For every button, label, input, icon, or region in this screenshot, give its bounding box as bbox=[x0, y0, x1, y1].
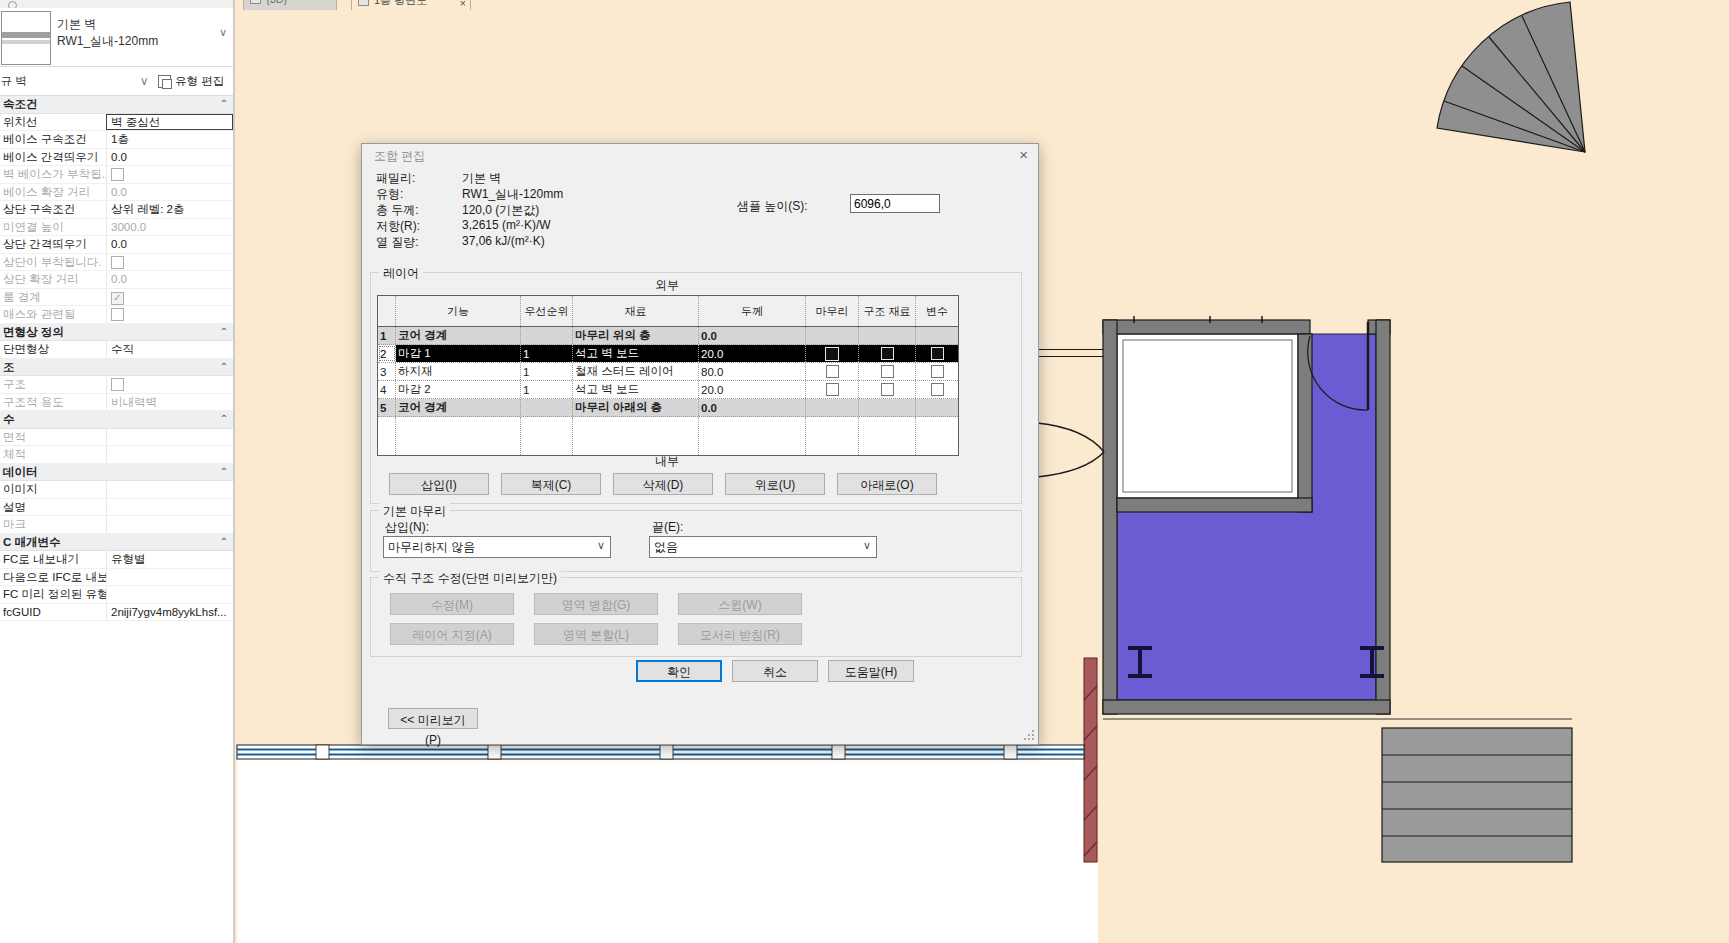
type-selector-dropdown-icon[interactable]: ∨ bbox=[219, 26, 227, 39]
property-value[interactable]: 상위 레벨: 2층 bbox=[106, 201, 233, 218]
property-section-header[interactable]: 조⌃ bbox=[0, 359, 233, 377]
property-section-header[interactable]: 데이터⌃ bbox=[0, 464, 233, 482]
structural-material-cell[interactable] bbox=[859, 327, 916, 344]
property-value[interactable]: 0.0 bbox=[106, 236, 233, 253]
type-selector[interactable]: 기본 벽 RW1_실내-120mm ∨ bbox=[0, 8, 233, 66]
total-thickness-value: 120,0 (기본값) bbox=[462, 202, 539, 219]
property-row[interactable]: 베이스 확장 거리0.0 bbox=[0, 184, 233, 202]
structural-material-cell[interactable] bbox=[859, 363, 916, 380]
3d-view-icon bbox=[250, 0, 261, 4]
priority-cell[interactable]: 1 bbox=[521, 363, 573, 380]
resistance-label: 저항(R): bbox=[376, 218, 420, 235]
property-row[interactable]: 위치선벽 중심선 bbox=[0, 114, 233, 132]
wraps-cell[interactable] bbox=[806, 399, 859, 416]
checkbox-unchecked[interactable] bbox=[111, 308, 124, 321]
property-label: FC로 내보내기 bbox=[0, 551, 106, 568]
property-value[interactable] bbox=[106, 499, 233, 516]
checkbox-unchecked[interactable] bbox=[931, 365, 944, 378]
revit-window: {3D} 1층 평면도 × 기본 벽 RW1_실내-120mm ∨ 신규 벽 ∨ bbox=[0, 0, 1729, 943]
checkbox-unchecked[interactable] bbox=[931, 347, 944, 360]
default-wrapping-group: 기본 마무리 삽입(N): 끝(E): 마무리하지 않음 ∨ 없음 ∨ bbox=[370, 510, 1022, 572]
checkbox-unchecked[interactable] bbox=[111, 168, 124, 181]
property-label: 위치선 bbox=[0, 114, 106, 131]
column-header bbox=[378, 296, 396, 326]
property-value[interactable] bbox=[106, 306, 233, 323]
row-number[interactable]: 2 bbox=[378, 345, 396, 362]
property-value[interactable] bbox=[106, 429, 233, 446]
merge-regions-button: 영역 병합(G) bbox=[534, 593, 658, 615]
move-down-button[interactable]: 아래로(O) bbox=[837, 473, 937, 495]
tab-floor-plan[interactable]: 1층 평면도 × bbox=[351, 0, 471, 10]
property-value[interactable] bbox=[106, 446, 233, 463]
property-label: 체적 bbox=[0, 446, 106, 463]
exterior-region bbox=[1084, 862, 1098, 943]
property-label: 구조적 용도 bbox=[0, 394, 106, 411]
wrap-insert-label: 삽입(N): bbox=[385, 519, 429, 536]
priority-cell[interactable] bbox=[521, 327, 573, 344]
filter-select[interactable]: 신규 벽 bbox=[0, 74, 27, 89]
checkbox-unchecked[interactable] bbox=[931, 383, 944, 396]
row-number[interactable]: 1 bbox=[378, 327, 396, 344]
checkbox-unchecked[interactable] bbox=[881, 383, 894, 396]
layer-row[interactable]: 5코어 경계마무리 아래의 층0.0 bbox=[378, 399, 958, 417]
priority-cell[interactable]: 1 bbox=[521, 345, 573, 362]
floor-plan-icon bbox=[358, 0, 369, 6]
move-up-button[interactable]: 위로(U) bbox=[725, 473, 825, 495]
close-icon[interactable]: × bbox=[1019, 146, 1028, 163]
type-value: RW1_실내-120mm bbox=[462, 186, 563, 203]
insert-button[interactable]: 삽입(I) bbox=[389, 473, 489, 495]
material-cell[interactable] bbox=[573, 417, 699, 455]
property-value[interactable]: 0.0 bbox=[106, 149, 233, 166]
property-label: 매스와 관련됨 bbox=[0, 306, 106, 323]
property-value[interactable]: 3000.0 bbox=[106, 219, 233, 236]
collapse-chevron-icon[interactable]: ⌃ bbox=[215, 96, 233, 113]
property-label: 설명 bbox=[0, 499, 106, 516]
structural-material-cell[interactable] bbox=[859, 399, 916, 416]
edit-type-button[interactable]: 유형 편집 bbox=[158, 70, 232, 92]
material-cell[interactable]: 석고 벽 보드 bbox=[573, 345, 699, 362]
layer-row[interactable]: 2마감 11석고 벽 보드20.0 bbox=[378, 345, 958, 363]
layer-row[interactable]: 1코어 경계마무리 위의 층0.0 bbox=[378, 327, 958, 345]
checkbox-unchecked[interactable] bbox=[881, 347, 894, 360]
layers-table-header: 기능우선순위재료두께마무리구조 재료변수 bbox=[378, 296, 958, 327]
tab-3d-view[interactable]: {3D} bbox=[243, 0, 337, 10]
wraps-cell[interactable] bbox=[806, 345, 859, 362]
function-cell[interactable]: 하지재 bbox=[396, 363, 521, 380]
function-cell[interactable]: 코어 경계 bbox=[396, 399, 521, 416]
function-cell[interactable]: 마감 2 bbox=[396, 381, 521, 398]
wraps-cell[interactable] bbox=[806, 363, 859, 380]
property-value[interactable] bbox=[106, 166, 233, 183]
property-section-header[interactable]: 면형상 정의⌃ bbox=[0, 324, 233, 342]
property-row[interactable]: 베이스 구속조건1층 bbox=[0, 131, 233, 149]
split-region-button: 영역 분할(L) bbox=[534, 623, 658, 645]
property-label: 면형상 정의 bbox=[0, 324, 215, 341]
column-header: 기능 bbox=[396, 296, 521, 326]
property-section-header[interactable]: 수⌃ bbox=[0, 411, 233, 429]
sample-height-label: 샘플 높이(S): bbox=[737, 198, 808, 215]
wrap-end-label: 끝(E): bbox=[652, 519, 683, 536]
property-value[interactable] bbox=[106, 481, 233, 498]
collapse-chevron-icon[interactable]: ⌃ bbox=[215, 464, 233, 481]
close-tab-icon[interactable]: × bbox=[460, 0, 466, 8]
duplicate-button[interactable]: 복제(C) bbox=[501, 473, 601, 495]
wraps-cell[interactable] bbox=[806, 381, 859, 398]
checkbox-unchecked[interactable] bbox=[111, 378, 124, 391]
thickness-cell[interactable]: 20.0 bbox=[699, 345, 806, 362]
modify-button: 수정(M) bbox=[390, 593, 514, 615]
property-label: 이미지 bbox=[0, 481, 106, 498]
wraps-cell[interactable] bbox=[806, 417, 859, 455]
checkbox-unchecked[interactable] bbox=[826, 365, 839, 378]
property-value[interactable] bbox=[106, 254, 233, 271]
view-tab-bar: {3D} 1층 평면도 × bbox=[237, 0, 1729, 10]
row-number[interactable]: 3 bbox=[378, 363, 396, 380]
property-row[interactable]: 체적 bbox=[0, 446, 233, 464]
structural-material-cell[interactable] bbox=[859, 381, 916, 398]
wraps-cell[interactable] bbox=[806, 327, 859, 344]
vertical-structure-label: 수직 구조 수정(단면 미리보기만) bbox=[379, 570, 561, 587]
tab-label: 1층 평면도 bbox=[374, 0, 427, 8]
layers-table[interactable]: 기능우선순위재료두께마무리구조 재료변수1코어 경계마무리 위의 층0.02마감… bbox=[377, 295, 959, 456]
property-value[interactable]: 0.0 bbox=[106, 184, 233, 201]
column-header: 두께 bbox=[699, 296, 806, 326]
row-number[interactable] bbox=[378, 417, 396, 455]
row-number[interactable]: 5 bbox=[378, 399, 396, 416]
column-header: 재료 bbox=[573, 296, 699, 326]
property-value[interactable]: ✓ bbox=[106, 289, 233, 306]
property-value[interactable] bbox=[106, 516, 233, 533]
property-label: 상단이 부착됩니다. bbox=[0, 254, 106, 271]
collapse-chevron-icon[interactable]: ⌃ bbox=[215, 411, 233, 428]
variable-cell[interactable] bbox=[916, 363, 958, 380]
property-row[interactable]: 구조적 용도비내력벽 bbox=[0, 394, 233, 412]
edit-assembly-dialog: 조합 편집 × 패밀리: 기본 벽 유형: RW1_실내-120mm 총 두께:… bbox=[361, 143, 1039, 745]
tab-label: {3D} bbox=[266, 0, 287, 5]
collapse-chevron-icon[interactable]: ⌃ bbox=[215, 324, 233, 341]
family-label: 패밀리: bbox=[376, 170, 415, 187]
column-header: 변수 bbox=[916, 296, 958, 326]
property-label: 단면형상 bbox=[0, 341, 106, 358]
priority-cell[interactable] bbox=[521, 417, 573, 455]
property-row[interactable]: FC 미리 정의된 유형 bbox=[0, 586, 233, 604]
variable-cell[interactable] bbox=[916, 381, 958, 398]
chevron-down-icon[interactable]: ∨ bbox=[140, 74, 148, 88]
ok-button[interactable]: 확인 bbox=[636, 660, 722, 682]
property-row[interactable]: 벽 베이스가 부착됩... bbox=[0, 166, 233, 184]
property-label: 상단 간격띄우기 bbox=[0, 236, 106, 253]
property-value[interactable]: 벽 중심선 bbox=[106, 114, 233, 131]
collapse-chevron-icon[interactable]: ⌃ bbox=[215, 359, 233, 376]
cancel-button[interactable]: 취소 bbox=[732, 660, 818, 682]
thermal-mass-value: 37,06 kJ/(m²·K) bbox=[462, 234, 545, 248]
property-row[interactable]: 상단 구속조건상위 레벨: 2층 bbox=[0, 201, 233, 219]
resistance-value: 3,2615 (m²·K)/W bbox=[462, 218, 551, 232]
property-row[interactable]: FC로 내보내기유형별 bbox=[0, 551, 233, 569]
sample-height-input[interactable] bbox=[850, 194, 940, 213]
delete-button[interactable]: 삭제(D) bbox=[613, 473, 713, 495]
function-cell[interactable]: 코어 경계 bbox=[396, 327, 521, 344]
assign-layers-button: 레이어 지정(A) bbox=[390, 623, 514, 645]
exterior-label: 외부 bbox=[377, 277, 957, 294]
material-cell[interactable]: 석고 벽 보드 bbox=[573, 381, 699, 398]
checkbox-unchecked[interactable] bbox=[826, 383, 839, 396]
property-label: 마크 bbox=[0, 516, 106, 533]
priority-cell[interactable]: 1 bbox=[521, 381, 573, 398]
material-cell[interactable]: 철재 스터드 레이어 bbox=[573, 363, 699, 380]
property-value[interactable] bbox=[106, 569, 233, 586]
sweeps-button: 스윕(W) bbox=[678, 593, 802, 615]
property-label: 면적 bbox=[0, 429, 106, 446]
resize-grip[interactable] bbox=[1024, 730, 1034, 740]
priority-cell[interactable] bbox=[521, 399, 573, 416]
property-row[interactable]: fcGUID2niji7ygv4m8yykLhsf... bbox=[0, 604, 233, 622]
property-row[interactable]: 상단이 부착됩니다. bbox=[0, 254, 233, 272]
edit-type-icon bbox=[158, 75, 171, 88]
property-row[interactable]: 단면형상수직 bbox=[0, 341, 233, 359]
property-value[interactable] bbox=[106, 586, 233, 603]
property-row[interactable]: 미연결 높이3000.0 bbox=[0, 219, 233, 237]
property-label: 구조 bbox=[0, 376, 106, 393]
family-value: 기본 벽 bbox=[462, 170, 501, 187]
layer-row[interactable]: 3하지재1철재 스터드 레이어80.0 bbox=[378, 363, 958, 381]
property-label: 베이스 구속조건 bbox=[0, 131, 106, 148]
vertical-structure-group: 수직 구조 수정(단면 미리보기만) 수정(M)영역 병합(G)스윕(W)레이어… bbox=[370, 577, 1022, 657]
total-thickness-label: 총 두께: bbox=[376, 202, 419, 219]
wrap-insert-select[interactable]: 마무리하지 않음 ∨ bbox=[383, 536, 611, 558]
property-label: 룸 경계 bbox=[0, 289, 106, 306]
property-label: 상단 구속조건 bbox=[0, 201, 106, 218]
thickness-cell[interactable] bbox=[699, 417, 806, 455]
property-label: C 매개변수 bbox=[0, 534, 215, 551]
type-family: 기본 벽 bbox=[57, 16, 158, 33]
interior-label: 내부 bbox=[377, 453, 957, 470]
curtain-wall bbox=[237, 745, 1084, 759]
thickness-cell[interactable]: 0.0 bbox=[699, 327, 806, 344]
column-header: 마무리 bbox=[806, 296, 859, 326]
function-cell[interactable] bbox=[396, 417, 521, 455]
wrap-insert-value: 마무리하지 않음 bbox=[388, 539, 475, 556]
variable-cell[interactable] bbox=[916, 345, 958, 362]
checkbox-unchecked[interactable] bbox=[881, 365, 894, 378]
property-row[interactable]: 마크 bbox=[0, 516, 233, 534]
row-number[interactable]: 4 bbox=[378, 381, 396, 398]
material-cell[interactable]: 마무리 아래의 층 bbox=[573, 399, 699, 416]
stair-run bbox=[1382, 728, 1572, 862]
wall-type-preview bbox=[1, 11, 51, 65]
property-value[interactable]: 수직 bbox=[106, 341, 233, 358]
property-label: 수 bbox=[0, 411, 215, 428]
checkbox-unchecked[interactable] bbox=[825, 347, 839, 361]
thickness-cell[interactable]: 0.0 bbox=[699, 399, 806, 416]
property-value[interactable] bbox=[106, 376, 233, 393]
material-cell[interactable]: 마무리 위의 층 bbox=[573, 327, 699, 344]
dialog-title: 조합 편집 bbox=[374, 148, 425, 165]
property-label: 베이스 확장 거리 bbox=[0, 184, 106, 201]
property-label: 조 bbox=[0, 359, 215, 376]
reveals-button: 모서리 받침(R) bbox=[678, 623, 802, 645]
collapse-chevron-icon[interactable]: ⌃ bbox=[215, 534, 233, 551]
thermal-mass-label: 열 질량: bbox=[376, 234, 419, 251]
property-row[interactable]: 룸 경계✓ bbox=[0, 289, 233, 307]
property-row[interactable]: 구조 bbox=[0, 376, 233, 394]
properties-palette: 기본 벽 RW1_실내-120mm ∨ 신규 벽 ∨ 유형 편집 속조건⌃위치선… bbox=[0, 0, 235, 943]
property-value[interactable]: 0.0 bbox=[106, 271, 233, 288]
function-cell[interactable]: 마감 1 bbox=[396, 345, 521, 362]
column-header: 구조 재료 bbox=[859, 296, 916, 326]
properties-filter-row: 신규 벽 ∨ 유형 편집 bbox=[0, 66, 233, 96]
chevron-down-icon: ∨ bbox=[863, 539, 871, 552]
property-row[interactable]: 면적 bbox=[0, 429, 233, 447]
default-wrapping-label: 기본 마무리 bbox=[379, 503, 450, 520]
property-row[interactable]: 이미지 bbox=[0, 481, 233, 499]
property-section-header[interactable]: C 매개변수⌃ bbox=[0, 534, 233, 552]
property-value[interactable]: 2niji7ygv4m8yykLhsf... bbox=[106, 604, 233, 621]
property-label: 미연결 높이 bbox=[0, 219, 106, 236]
red-wall bbox=[1084, 658, 1097, 862]
property-value[interactable]: 유형별 bbox=[106, 551, 233, 568]
structural-material-cell[interactable] bbox=[859, 345, 916, 362]
thickness-cell[interactable]: 80.0 bbox=[699, 363, 806, 380]
property-row[interactable]: 설명 bbox=[0, 499, 233, 517]
exterior-region bbox=[237, 759, 1084, 943]
layers-group: 레이어 외부 기능우선순위재료두께마무리구조 재료변수1코어 경계마무리 위의 … bbox=[370, 272, 1022, 504]
property-section-header[interactable]: 속조건⌃ bbox=[0, 96, 233, 114]
preview-toggle-button[interactable]: << 미리보기(P) bbox=[388, 708, 478, 729]
property-label: FC 미리 정의된 유형 bbox=[0, 586, 106, 603]
variable-cell[interactable] bbox=[916, 399, 958, 416]
property-row[interactable]: 베이스 간격띄우기0.0 bbox=[0, 149, 233, 167]
edit-type-label: 유형 편집 bbox=[175, 74, 224, 89]
property-label: 베이스 간격띄우기 bbox=[0, 149, 106, 166]
palette-header-strip bbox=[0, 0, 233, 8]
variable-cell[interactable] bbox=[916, 327, 958, 344]
property-row[interactable]: 상단 간격띄우기0.0 bbox=[0, 236, 233, 254]
property-row[interactable]: 상단 확장 거리0.0 bbox=[0, 271, 233, 289]
property-label: 벽 베이스가 부착됩... bbox=[0, 166, 106, 183]
variable-cell[interactable] bbox=[916, 417, 958, 455]
chevron-down-icon: ∨ bbox=[597, 539, 605, 552]
property-label: 속조건 bbox=[0, 96, 215, 113]
type-label: 유형: bbox=[376, 186, 403, 203]
property-row[interactable]: 다음으로 IFC로 내보... bbox=[0, 569, 233, 587]
property-row[interactable]: 매스와 관련됨 bbox=[0, 306, 233, 324]
thickness-cell[interactable]: 20.0 bbox=[699, 381, 806, 398]
wrap-end-select[interactable]: 없음 ∨ bbox=[649, 536, 877, 558]
type-name: RW1_실내-120mm bbox=[57, 33, 158, 50]
property-value[interactable]: 비내력벽 bbox=[106, 394, 233, 411]
column-header: 우선순위 bbox=[521, 296, 573, 326]
property-label: fcGUID bbox=[0, 604, 106, 621]
help-button[interactable]: 도움말(H) bbox=[828, 660, 914, 682]
layer-row[interactable]: 4마감 21석고 벽 보드20.0 bbox=[378, 381, 958, 399]
property-label: 다음으로 IFC로 내보... bbox=[0, 569, 106, 586]
checkbox-checked[interactable]: ✓ bbox=[111, 292, 124, 305]
layer-row[interactable] bbox=[378, 417, 958, 455]
white-room bbox=[1117, 334, 1298, 498]
property-value[interactable]: 1층 bbox=[106, 131, 233, 148]
wrap-end-value: 없음 bbox=[654, 539, 678, 556]
properties-rows: 속조건⌃위치선벽 중심선베이스 구속조건1층베이스 간격띄우기0.0벽 베이스가… bbox=[0, 96, 233, 621]
checkbox-unchecked[interactable] bbox=[111, 256, 124, 269]
property-label: 상단 확장 거리 bbox=[0, 271, 106, 288]
property-label: 데이터 bbox=[0, 464, 215, 481]
structural-material-cell[interactable] bbox=[859, 417, 916, 455]
